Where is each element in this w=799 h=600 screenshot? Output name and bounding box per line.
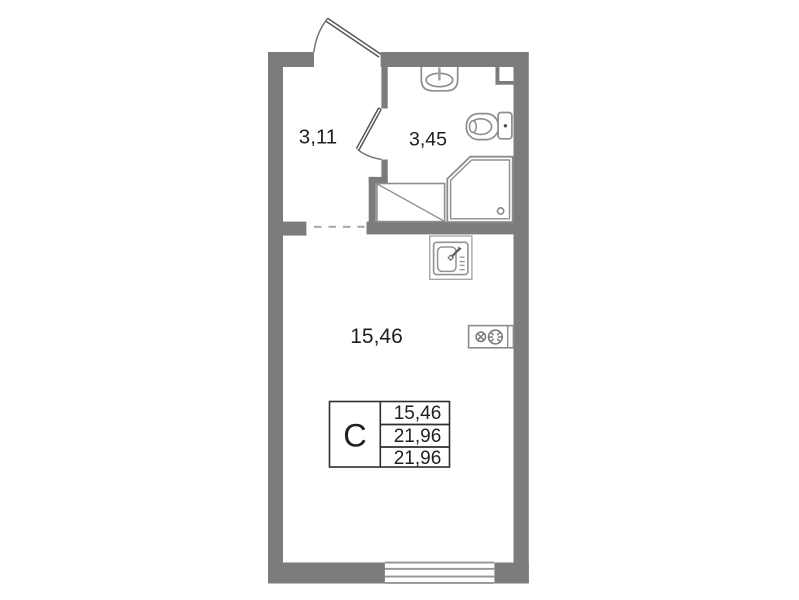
svg-text:С: С [343, 418, 366, 454]
svg-text:21,96: 21,96 [394, 426, 442, 447]
svg-text:15,46: 15,46 [350, 325, 403, 348]
svg-text:21,96: 21,96 [394, 448, 442, 469]
svg-text:3,11: 3,11 [299, 125, 337, 148]
svg-text:15,46: 15,46 [394, 403, 442, 424]
svg-text:3,45: 3,45 [409, 129, 447, 151]
